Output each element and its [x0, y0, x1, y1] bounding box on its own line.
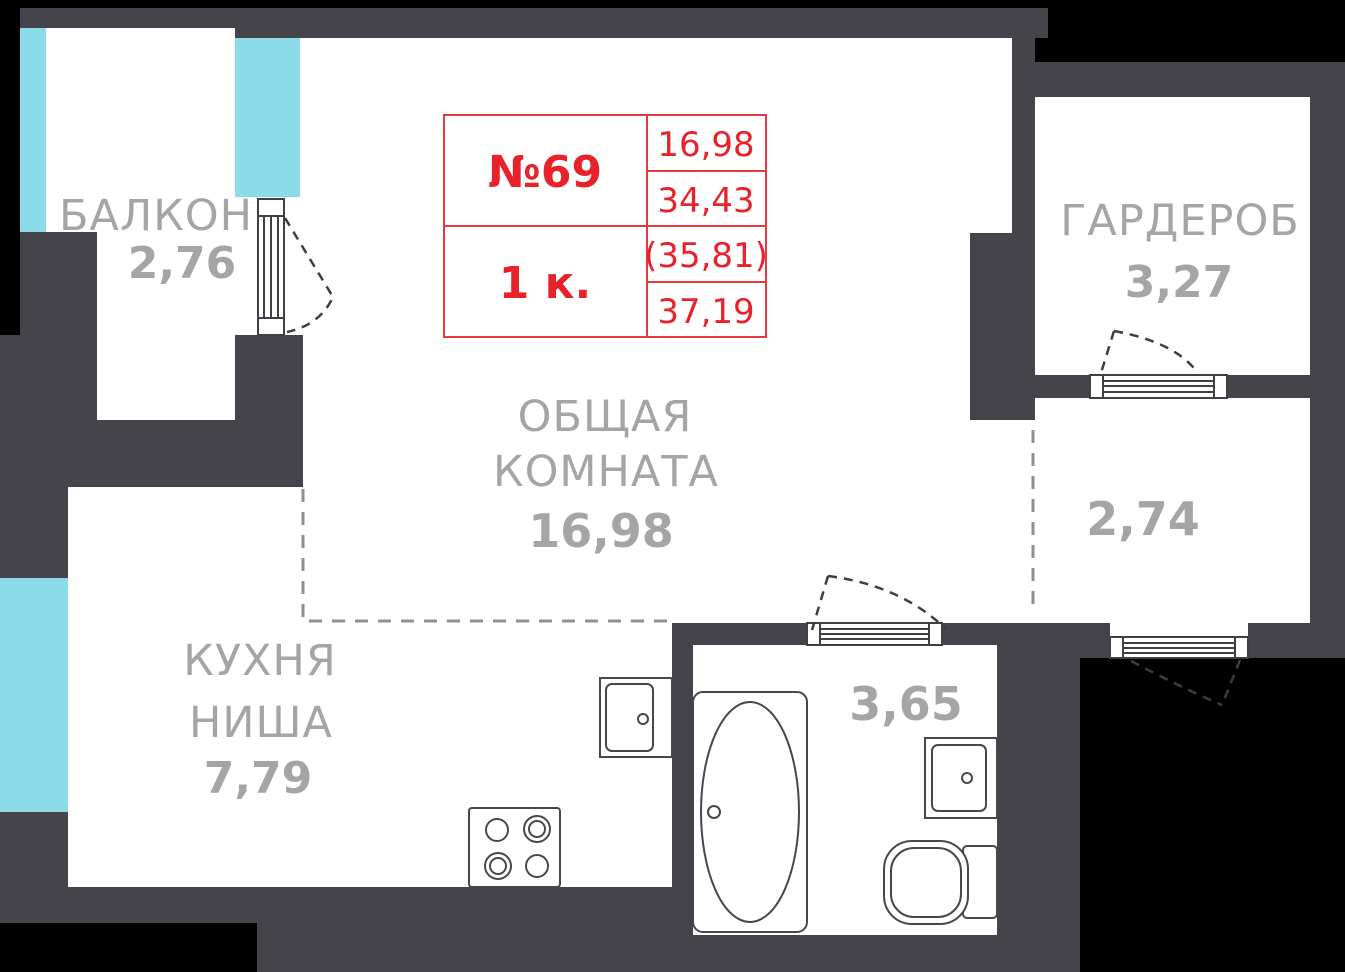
kitchen-sink-drain — [638, 714, 648, 724]
kitchen-label-line2: НИША — [189, 698, 333, 748]
floor-plan-canvas: БАЛКОН 2,76 ГАРДЕРОБ 3,27 ОБЩАЯ КОМНАТА … — [0, 0, 1345, 972]
wardrobe-door-cap-right — [1214, 375, 1227, 398]
entry-niche-floor — [1108, 623, 1248, 637]
floor-plan: БАЛКОН 2,76 ГАРДЕРОБ 3,27 ОБЩАЯ КОМНАТА … — [0, 0, 1345, 972]
unit-area-total: 37,19 — [657, 292, 754, 332]
entry-door-cap-right — [1235, 637, 1248, 658]
entry-door-cap-left — [1110, 637, 1123, 658]
wall-balcony-bottom — [0, 420, 303, 487]
unit-number: №69 — [488, 147, 602, 198]
bathroom-door-cap-right — [929, 623, 942, 645]
kitchen-label-line1: КУХНЯ — [183, 636, 336, 686]
unit-area-living: 16,98 — [657, 125, 754, 165]
wall-wardrobe-left-upper — [1012, 35, 1035, 233]
toilet-bowl-outer — [884, 841, 968, 924]
wall-wardrobe-left-block — [970, 233, 1035, 420]
wall-entry-left — [997, 623, 1110, 658]
wall-wardrobe-top — [1033, 62, 1345, 97]
unit-area-with-balcony: (35,81) — [644, 236, 768, 276]
bathroom-sink-basin — [932, 745, 986, 811]
balcony-area: 2,76 — [128, 238, 237, 289]
bathroom-sink — [925, 738, 997, 818]
balcony-living-window — [235, 38, 300, 197]
balcony-side-window — [20, 28, 46, 232]
wall-bottom-middle — [257, 887, 693, 972]
wardrobe-label: ГАРДЕРОБ — [1060, 196, 1300, 246]
stove — [469, 808, 560, 887]
wall-left-kitchen-lower — [0, 812, 68, 887]
wall-top-main — [235, 8, 1048, 38]
living-room-area: 16,98 — [528, 504, 674, 558]
bathroom-sink-drain — [962, 773, 972, 783]
living-room-label-line1: ОБЩАЯ — [518, 392, 693, 442]
wall-entry-right — [1248, 623, 1310, 658]
living-room-label-line2: КОМНАТА — [493, 447, 719, 497]
wall-bathroom-left — [672, 623, 693, 972]
kitchen-area: 7,79 — [204, 753, 313, 804]
bathroom-area: 3,65 — [849, 677, 963, 731]
wardrobe-area: 3,27 — [1125, 257, 1234, 308]
wall-left-kitchen-upper — [0, 487, 68, 578]
wardrobe-door-cap-left — [1090, 375, 1103, 398]
wall-bathroom-bottom — [693, 935, 998, 972]
wall-right-lower-column — [997, 658, 1080, 972]
wall-right-outer — [1310, 62, 1345, 658]
wall-top-balcony — [20, 8, 235, 28]
toilet — [884, 841, 997, 924]
wall-bottom-left — [0, 887, 257, 923]
kitchen-sink — [600, 678, 672, 757]
wall-wardrobe-bottom-left — [1033, 375, 1090, 398]
balcony-door-cap-top — [258, 199, 284, 216]
bathtub-drain — [708, 806, 720, 818]
unit-area-main: 34,43 — [657, 181, 754, 221]
wall-bathroom-top-left — [693, 623, 807, 645]
balcony-door-cap-bottom — [258, 318, 284, 335]
unit-rooms-count: 1 к. — [499, 258, 592, 309]
balcony-label: БАЛКОН — [59, 191, 253, 241]
wall-wardrobe-bottom-right — [1227, 375, 1310, 398]
bathtub — [693, 692, 807, 932]
wall-balcony-door-column — [235, 335, 303, 420]
kitchen-window — [0, 578, 68, 812]
hall-area: 2,74 — [1086, 492, 1200, 546]
